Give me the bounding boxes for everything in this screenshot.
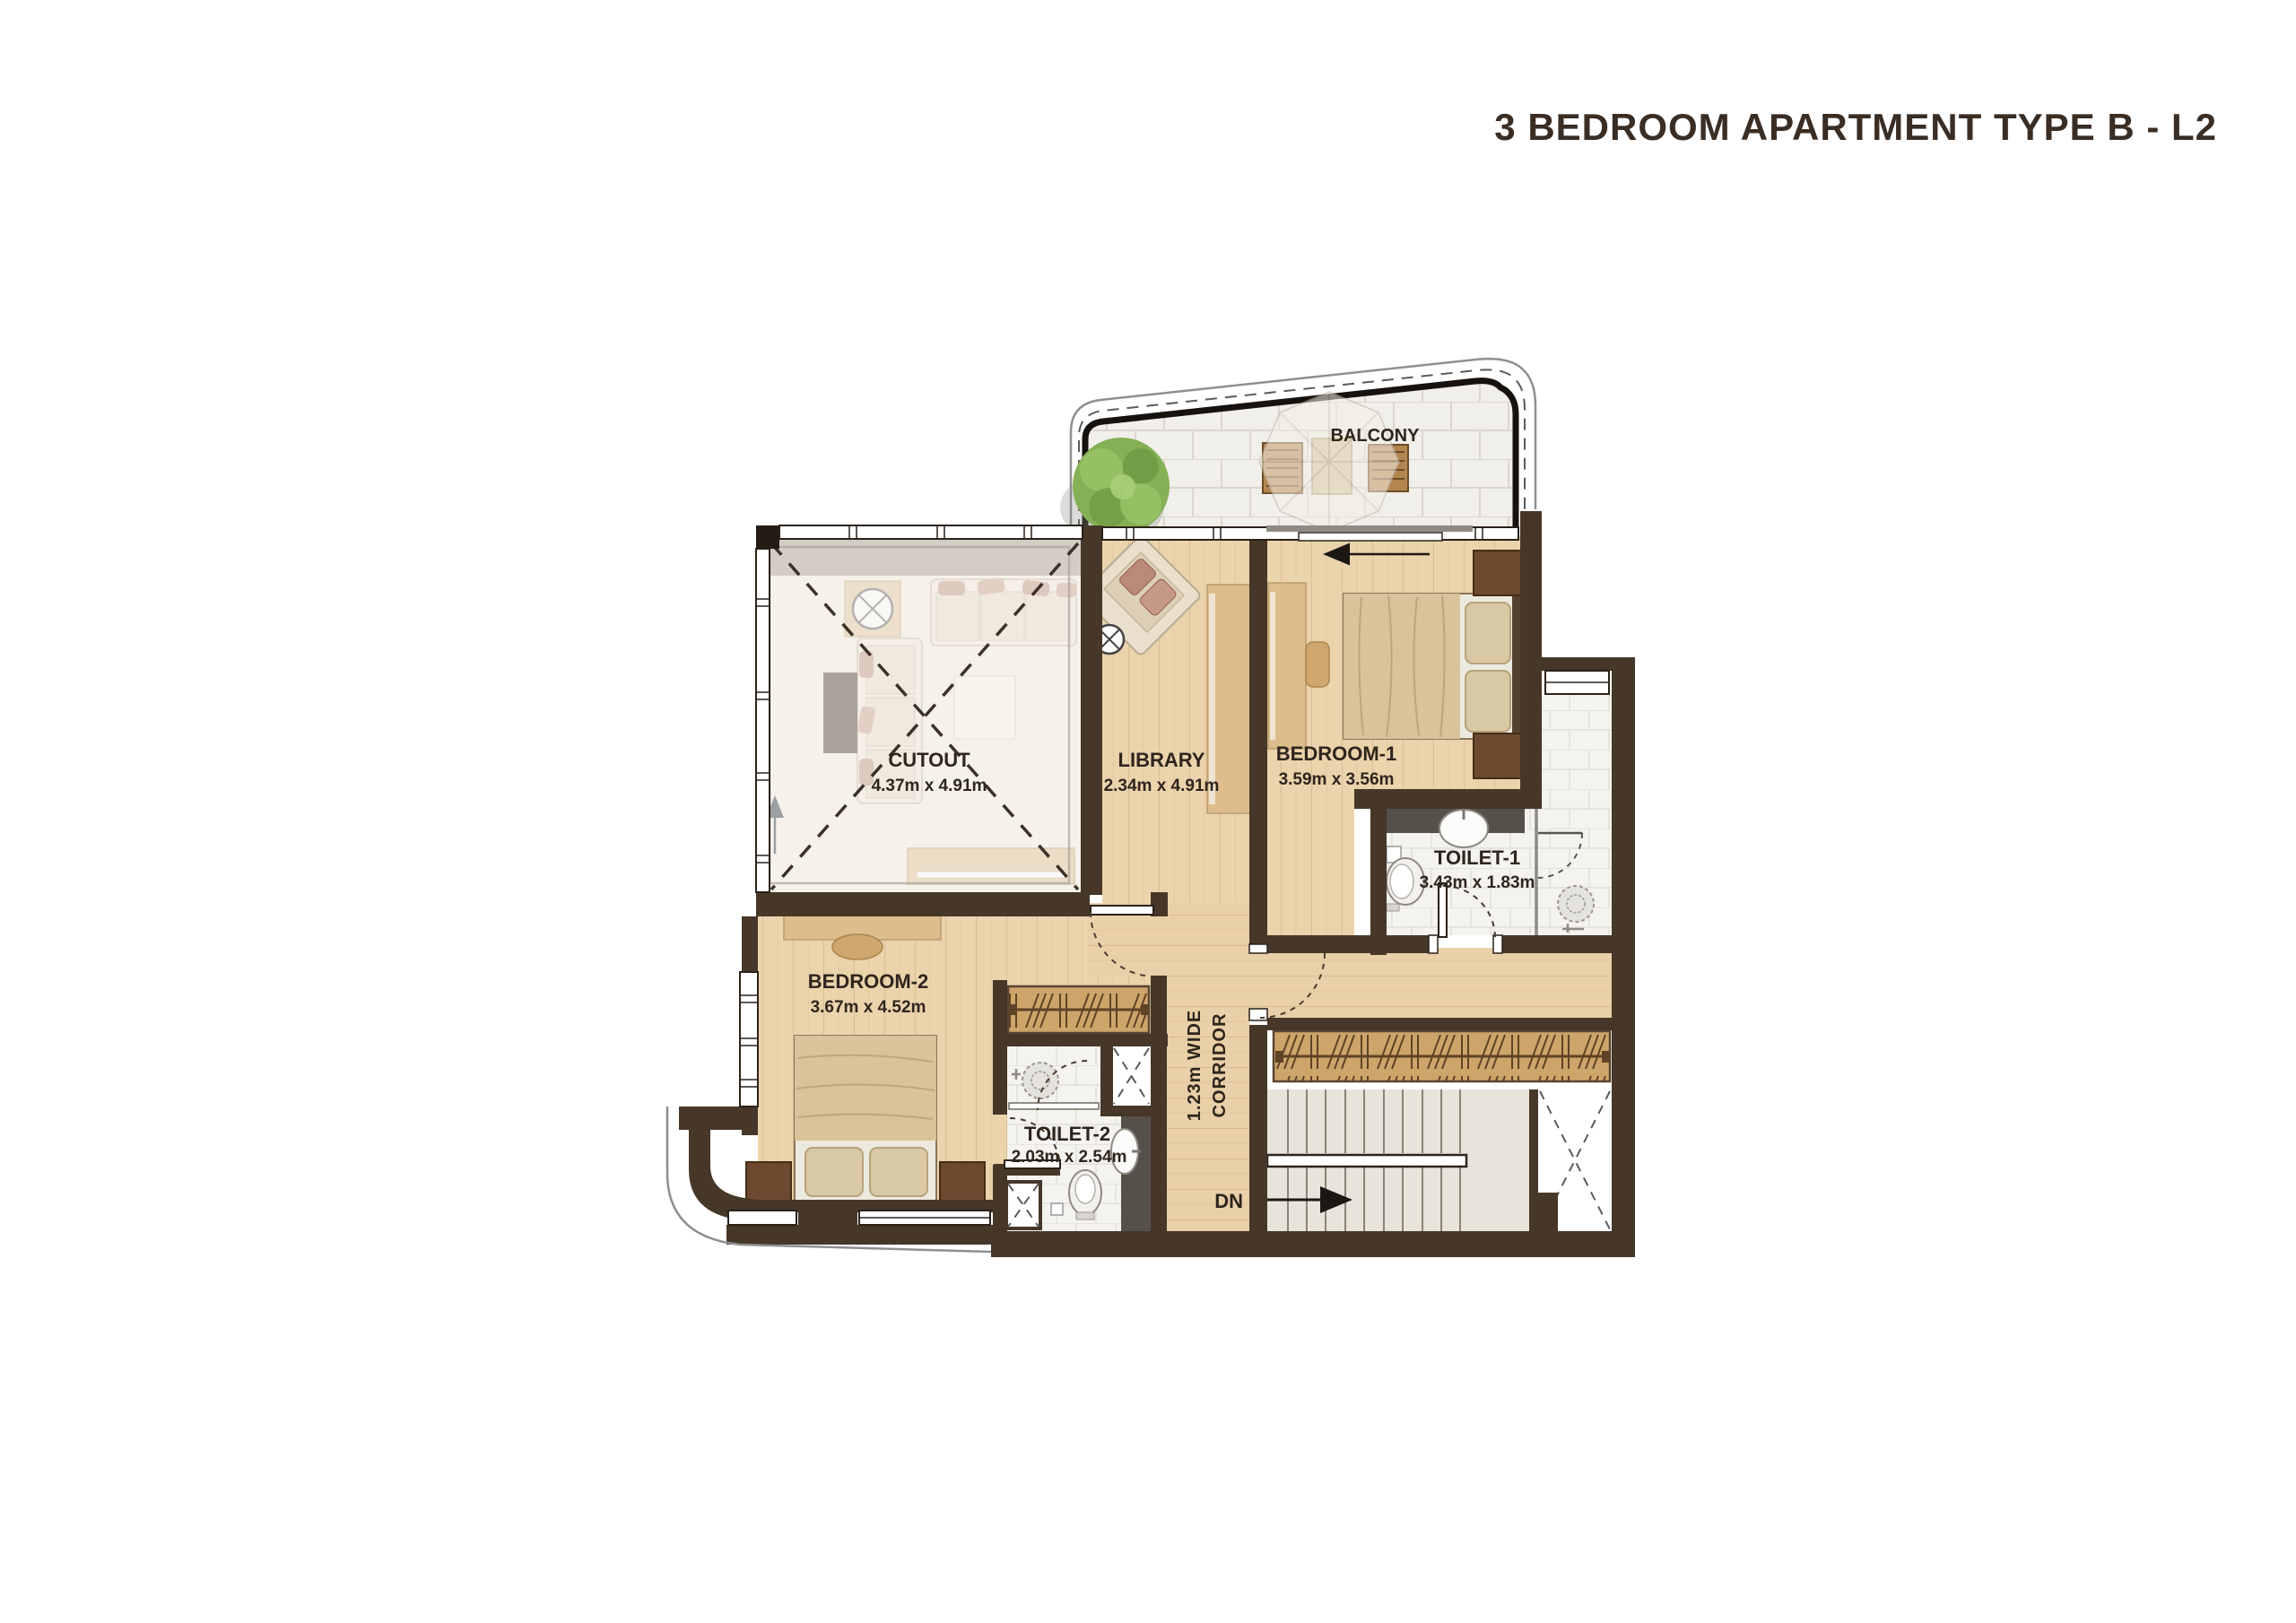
stair-handrail xyxy=(1267,1155,1466,1167)
toilet1-dims: 3.43m x 1.83m xyxy=(1420,873,1535,892)
bedroom2-south-windows xyxy=(728,1211,990,1225)
plan-title: 3 BEDROOM APARTMENT TYPE B - L2 xyxy=(1494,106,2217,149)
cutout-dims: 4.37m x 4.91m xyxy=(872,777,987,795)
bedroom2-wardrobe xyxy=(1008,986,1149,1033)
corridor-label-line1: 1.23m WIDE xyxy=(1185,1010,1205,1121)
bedroom1-lobby-floor xyxy=(1267,789,1354,935)
corridor-wardrobe xyxy=(1274,1031,1610,1081)
sliding-door-leaf xyxy=(1299,533,1442,541)
dn-label: DN xyxy=(1214,1190,1243,1212)
bedroom2-west-window xyxy=(740,972,758,1107)
bedroom1-dims: 3.59m x 3.56m xyxy=(1279,770,1395,789)
toilet2-dims: 2.03m x 2.54m xyxy=(1012,1148,1127,1167)
shower-glass xyxy=(1009,1103,1099,1109)
balcony: BALCONY xyxy=(1060,359,1535,543)
floor-plan-page: 3 BEDROOM APARTMENT TYPE B - L2 xyxy=(0,0,2296,1623)
corridor-arm-floor xyxy=(1249,948,1612,1018)
bedroom2-dims: 3.67m x 4.52m xyxy=(811,998,926,1017)
bedroom2-name: BEDROOM-2 xyxy=(808,970,928,993)
tree-icon xyxy=(1073,438,1170,534)
bedroom1-name: BEDROOM-1 xyxy=(1276,742,1396,765)
balcony-window-band xyxy=(1102,525,1518,541)
floor-plan-drawing: BALCONY xyxy=(0,0,2296,1623)
cutout-veil xyxy=(758,536,1081,892)
nightstand-icon xyxy=(1474,733,1522,778)
cutout-top-window xyxy=(779,525,1083,539)
cutout-gray-band xyxy=(758,536,1081,576)
library-name: LIBRARY xyxy=(1118,749,1205,771)
toilet2-name: TOILET-2 xyxy=(1024,1123,1110,1145)
umbrella-icon xyxy=(1259,392,1399,532)
sliding-door-rail xyxy=(1266,525,1473,532)
nightstand-icon xyxy=(1474,551,1522,595)
nightstand-icon xyxy=(746,1162,791,1205)
corridor-floor xyxy=(1166,903,1249,1233)
library-dims: 2.34m x 4.91m xyxy=(1104,777,1220,795)
nightstand-icon xyxy=(940,1162,985,1205)
bedroom1-bed-icon xyxy=(1344,590,1523,742)
toilet1-name: TOILET-1 xyxy=(1434,846,1520,869)
cutout-west-window xyxy=(756,549,770,892)
balcony-label: BALCONY xyxy=(1331,426,1421,446)
corridor-label-line2: CORRIDOR xyxy=(1210,1013,1230,1118)
cutout-name: CUTOUT xyxy=(888,749,970,771)
bedroom2-bed-icon xyxy=(795,1036,936,1211)
